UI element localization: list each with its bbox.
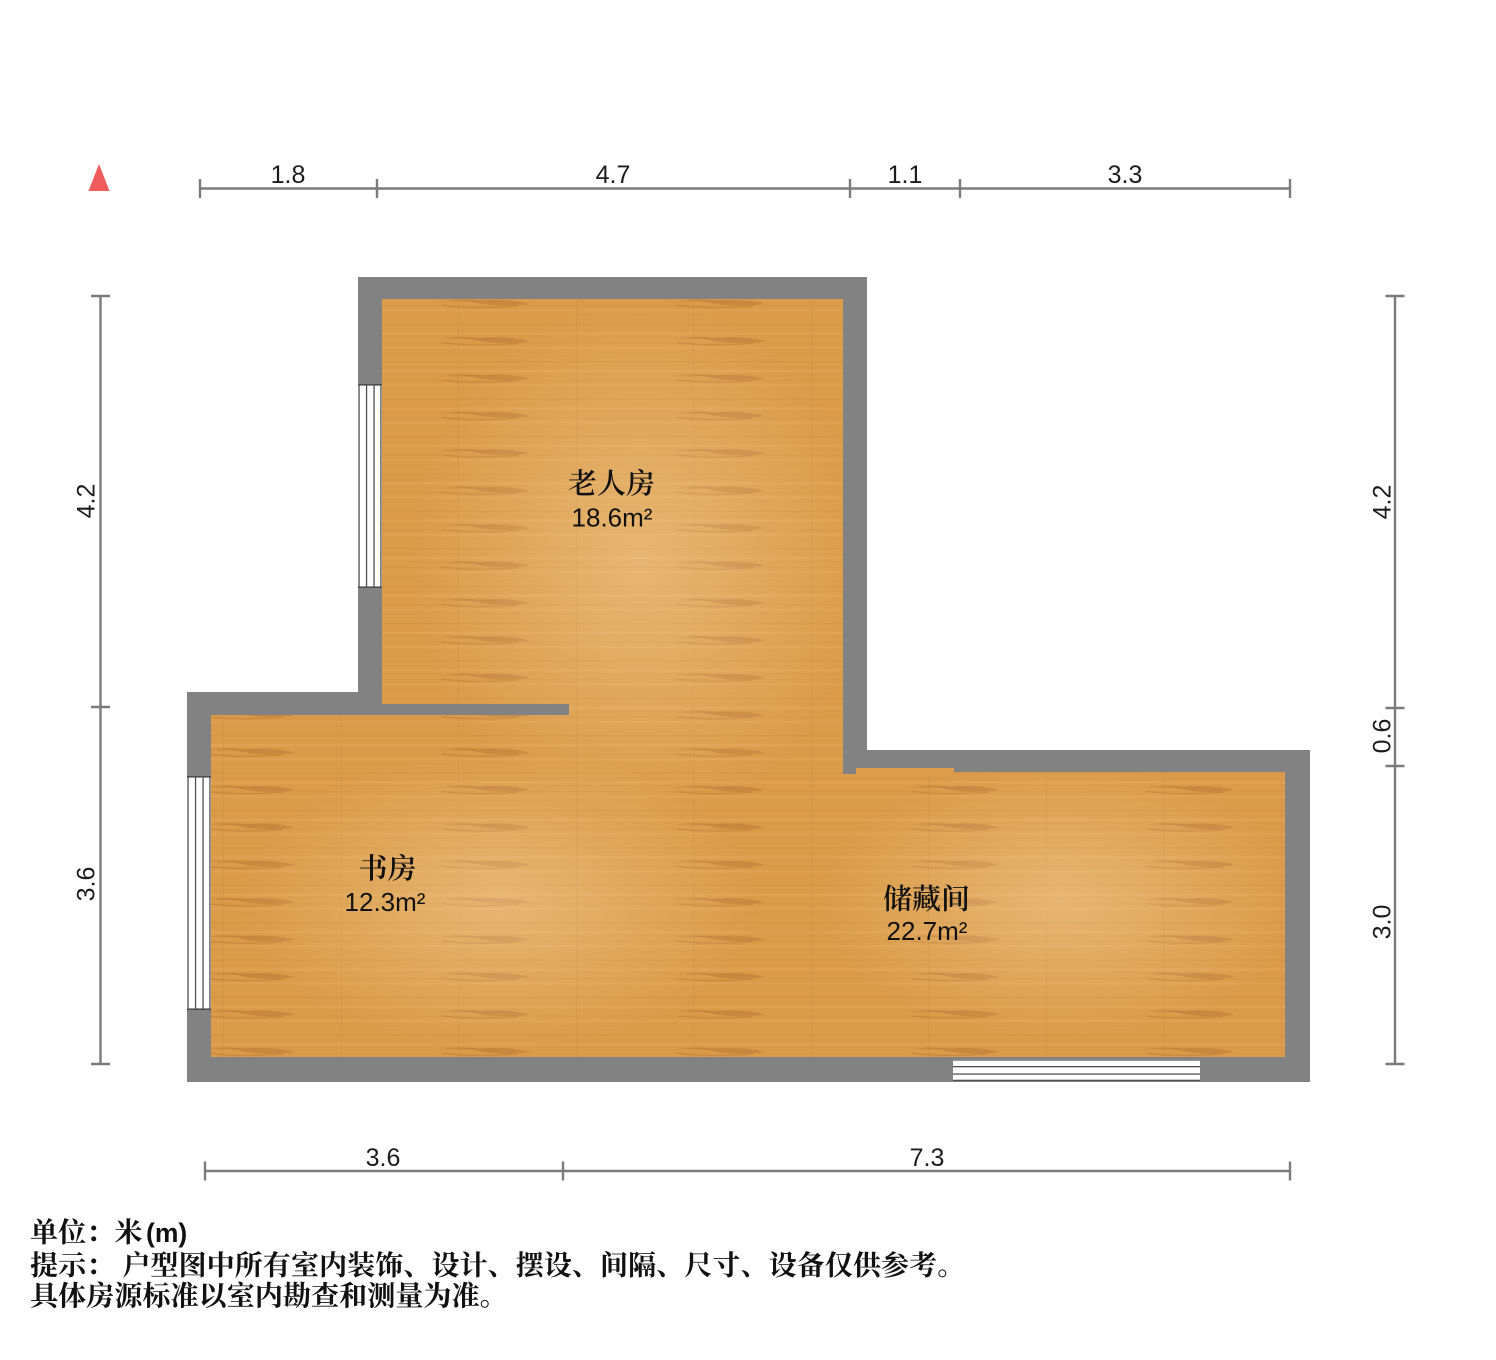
- svg-text:1.1: 1.1: [888, 161, 923, 189]
- svg-text:22.7m²: 22.7m²: [887, 916, 968, 946]
- svg-text:18.6m²: 18.6m²: [572, 503, 653, 533]
- svg-text:3.6: 3.6: [73, 867, 101, 902]
- svg-text:3.3: 3.3: [1108, 161, 1143, 189]
- svg-text:1.8: 1.8: [271, 161, 306, 189]
- svg-text:7.3: 7.3: [910, 1144, 945, 1172]
- svg-text:4.7: 4.7: [596, 161, 631, 189]
- svg-text:3.0: 3.0: [1369, 905, 1397, 940]
- svg-text:(m): (m): [146, 1218, 187, 1248]
- svg-text:3.6: 3.6: [366, 1144, 401, 1172]
- svg-text:4.2: 4.2: [73, 484, 101, 519]
- svg-text:0.6: 0.6: [1369, 719, 1397, 754]
- svg-text:12.3m²: 12.3m²: [345, 887, 426, 917]
- svg-text:4.2: 4.2: [1369, 485, 1397, 520]
